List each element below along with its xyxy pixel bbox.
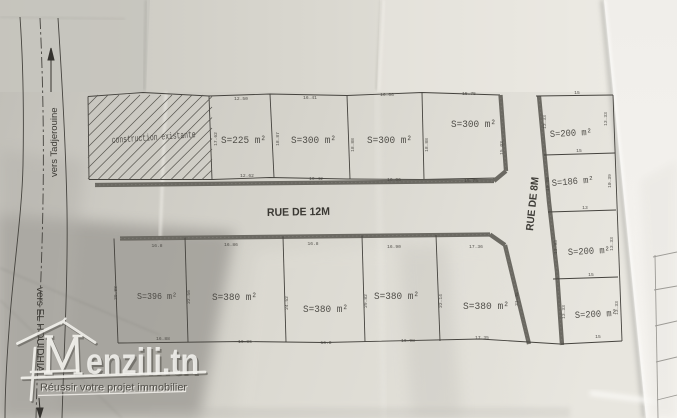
svg-text:vers Tadjerouine: vers Tadjerouine: [49, 107, 60, 177]
svg-text:enzili.tn: enzili.tn: [86, 341, 199, 382]
svg-text:22.56: 22.56: [186, 290, 192, 304]
svg-text:S=396 m²: S=396 m²: [137, 292, 177, 302]
svg-text:S=380 m²: S=380 m²: [374, 292, 419, 303]
svg-text:15.75: 15.75: [462, 91, 476, 97]
svg-text:16.8: 16.8: [151, 243, 162, 249]
svg-text:S=300 m²: S=300 m²: [367, 135, 412, 147]
svg-text:18.87: 18.87: [275, 132, 281, 146]
svg-text:16.98: 16.98: [401, 338, 415, 344]
svg-text:13.33: 13.33: [609, 237, 615, 251]
svg-text:S=380 m²: S=380 m²: [212, 293, 257, 304]
svg-text:13.33: 13.33: [561, 305, 567, 319]
svg-text:16.06: 16.06: [387, 177, 401, 183]
svg-text:17.62: 17.62: [213, 132, 219, 146]
svg-text:15: 15: [574, 90, 580, 96]
svg-text:13.33: 13.33: [603, 112, 609, 126]
svg-text:18.88: 18.88: [350, 138, 356, 152]
svg-text:S=200 m²: S=200 m²: [550, 127, 593, 140]
svg-text:15.03: 15.03: [499, 141, 505, 155]
svg-text:16.42: 16.42: [309, 176, 323, 182]
svg-text:13: 13: [582, 205, 588, 211]
svg-text:22.14: 22.14: [438, 294, 444, 308]
svg-text:13.33: 13.33: [614, 301, 620, 315]
svg-text:15: 15: [576, 148, 582, 154]
svg-text:S=200 m²: S=200 m²: [568, 245, 611, 258]
svg-text:12.50: 12.50: [234, 96, 248, 102]
svg-text:16.8: 16.8: [307, 241, 318, 247]
svg-text:S=380 m²: S=380 m²: [463, 302, 509, 313]
svg-text:17.36: 17.36: [469, 244, 483, 250]
svg-text:16.8: 16.8: [320, 340, 331, 346]
svg-text:18.88: 18.88: [424, 138, 430, 152]
svg-text:16.86: 16.86: [224, 242, 238, 248]
svg-text:21.45: 21.45: [514, 292, 520, 306]
svg-text:RUE DE 12M: RUE DE 12M: [267, 206, 330, 219]
svg-text:10.39: 10.39: [607, 174, 613, 188]
svg-text:29.82: 29.82: [363, 294, 369, 308]
svg-text:13.33: 13.33: [542, 115, 548, 129]
svg-text:S=200 m²: S=200 m²: [575, 308, 618, 321]
svg-text:12.62: 12.62: [240, 173, 254, 179]
svg-text:S=225 m²: S=225 m²: [221, 135, 266, 147]
svg-text:17.35: 17.35: [475, 335, 489, 341]
svg-text:15: 15: [595, 334, 601, 340]
svg-text:16.90: 16.90: [387, 244, 401, 250]
svg-text:13.33: 13.33: [553, 240, 559, 254]
svg-text:S=380 m²: S=380 m²: [303, 305, 348, 316]
svg-text:10.39: 10.39: [545, 177, 551, 191]
svg-text:16.06: 16.06: [380, 92, 394, 98]
svg-text:16.41: 16.41: [303, 95, 317, 101]
svg-text:29.88: 29.88: [113, 286, 119, 300]
svg-text:16.86: 16.86: [238, 339, 252, 345]
svg-text:24.52: 24.52: [284, 296, 290, 310]
svg-text:15.75: 15.75: [464, 178, 478, 184]
svg-text:15: 15: [588, 272, 594, 278]
svg-text:S=300 m²: S=300 m²: [451, 119, 496, 131]
svg-text:S=300 m²: S=300 m²: [291, 135, 336, 147]
